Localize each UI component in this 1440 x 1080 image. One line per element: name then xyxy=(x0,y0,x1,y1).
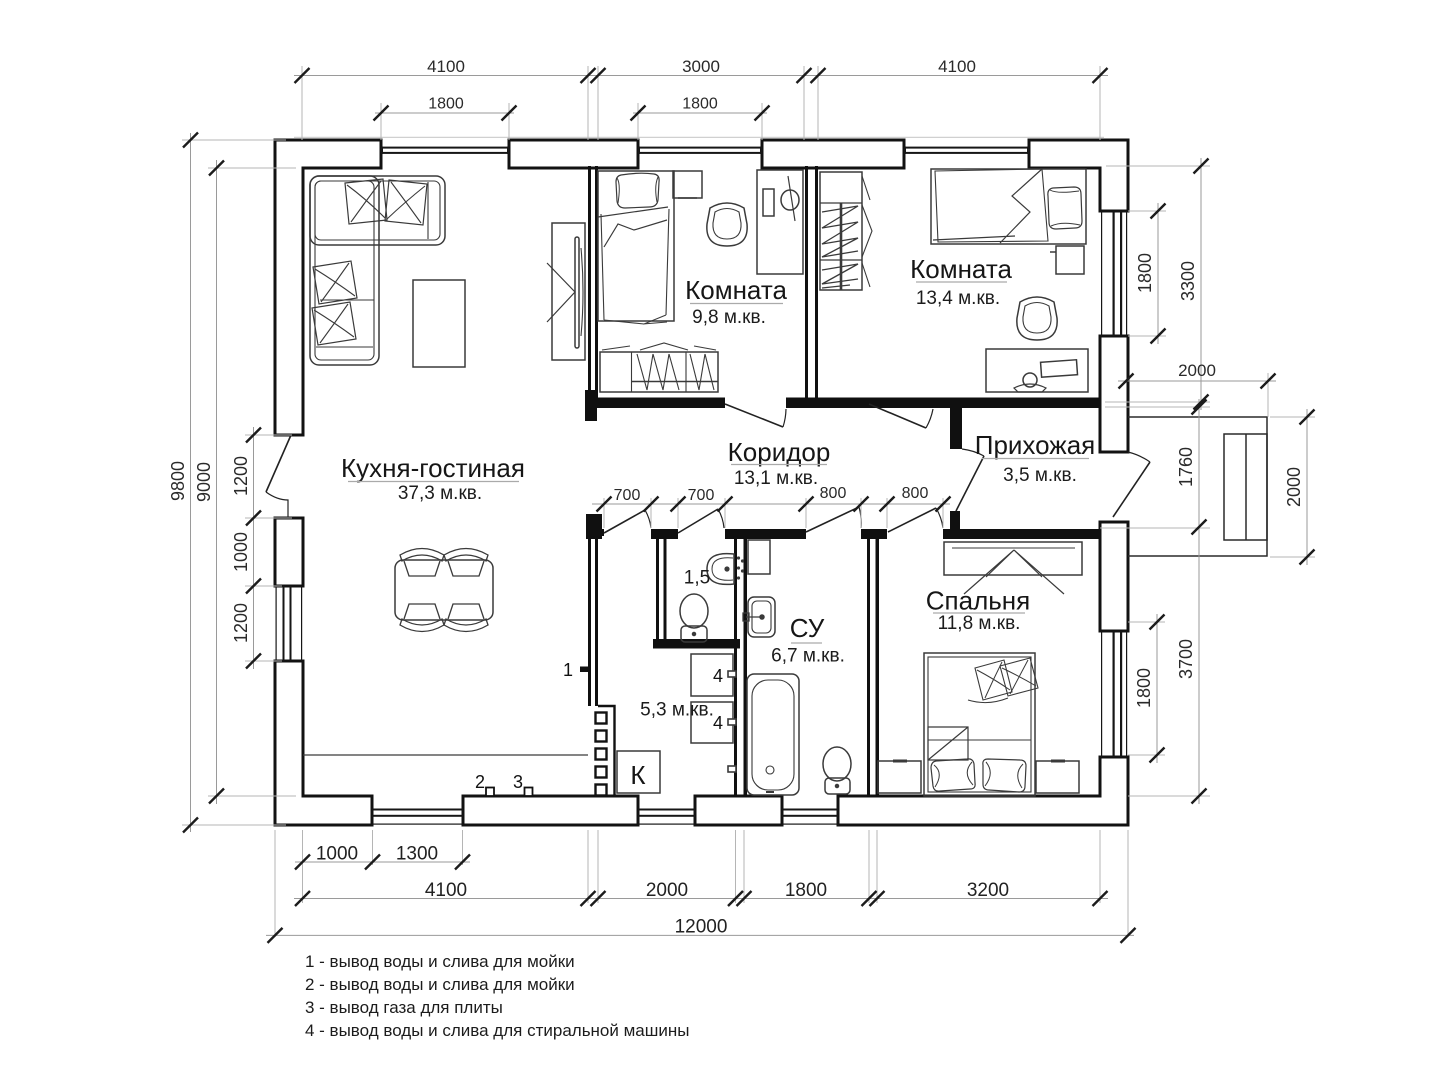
svg-text:3,5 м.кв.: 3,5 м.кв. xyxy=(1003,465,1077,486)
svg-text:3000: 3000 xyxy=(682,57,720,76)
svg-text:13,1 м.кв.: 13,1 м.кв. xyxy=(734,468,818,489)
svg-text:Спальня: Спальня xyxy=(926,586,1030,616)
svg-text:6,7 м.кв.: 6,7 м.кв. xyxy=(771,646,845,667)
svg-text:700: 700 xyxy=(614,487,641,504)
svg-text:Комната: Комната xyxy=(685,275,787,305)
svg-text:12000: 12000 xyxy=(675,917,728,938)
svg-text:4100: 4100 xyxy=(938,57,976,76)
svg-text:9,8 м.кв.: 9,8 м.кв. xyxy=(692,307,766,328)
svg-text:800: 800 xyxy=(820,485,847,502)
svg-text:2000: 2000 xyxy=(1284,467,1304,507)
svg-text:4: 4 xyxy=(713,666,723,686)
svg-text:1800: 1800 xyxy=(1134,668,1154,708)
svg-text:5,3 м.кв.: 5,3 м.кв. xyxy=(640,700,714,721)
svg-text:1300: 1300 xyxy=(396,844,438,865)
svg-text:1,5: 1,5 xyxy=(684,568,710,589)
svg-text:4100: 4100 xyxy=(425,880,467,901)
svg-text:3700: 3700 xyxy=(1176,639,1196,679)
svg-text:1000: 1000 xyxy=(316,844,358,865)
svg-text:9000: 9000 xyxy=(194,462,214,502)
svg-text:1800: 1800 xyxy=(682,96,718,113)
svg-text:4 - вывод воды и слива для сти: 4 - вывод воды и слива для стиральной ма… xyxy=(305,1021,690,1040)
svg-text:СУ: СУ xyxy=(790,613,825,643)
svg-text:1800: 1800 xyxy=(428,96,464,113)
svg-text:Кухня-гостиная: Кухня-гостиная xyxy=(341,453,525,483)
svg-text:13,4 м.кв.: 13,4 м.кв. xyxy=(916,288,1000,309)
svg-text:800: 800 xyxy=(902,485,929,502)
svg-text:3200: 3200 xyxy=(967,880,1009,901)
svg-text:3: 3 xyxy=(513,772,523,792)
svg-text:3300: 3300 xyxy=(1178,261,1198,301)
svg-text:700: 700 xyxy=(688,487,715,504)
svg-text:37,3 м.кв.: 37,3 м.кв. xyxy=(398,483,482,504)
svg-text:1800: 1800 xyxy=(785,880,827,901)
svg-text:1: 1 xyxy=(563,660,573,680)
svg-text:1200: 1200 xyxy=(231,456,251,496)
svg-text:1000: 1000 xyxy=(231,532,251,572)
svg-text:1200: 1200 xyxy=(231,603,251,643)
svg-text:11,8 м.кв.: 11,8 м.кв. xyxy=(938,613,1021,634)
svg-text:Комната: Комната xyxy=(910,254,1012,284)
svg-text:2000: 2000 xyxy=(1178,361,1216,380)
svg-text:Прихожая: Прихожая xyxy=(975,430,1095,460)
svg-text:2 - вывод воды и слива для мой: 2 - вывод воды и слива для мойки xyxy=(305,975,575,994)
svg-text:4: 4 xyxy=(713,713,723,733)
svg-text:4100: 4100 xyxy=(427,57,465,76)
svg-text:3 - вывод газа для плиты: 3 - вывод газа для плиты xyxy=(305,998,503,1017)
svg-text:1800: 1800 xyxy=(1135,253,1155,293)
svg-text:9800: 9800 xyxy=(168,461,188,501)
svg-text:2: 2 xyxy=(475,772,485,792)
svg-text:1 - вывод воды и слива для мой: 1 - вывод воды и слива для мойки xyxy=(305,952,575,971)
svg-text:Коридор: Коридор xyxy=(728,437,831,467)
svg-text:1760: 1760 xyxy=(1176,447,1196,487)
svg-text:К: К xyxy=(630,760,645,790)
svg-text:2000: 2000 xyxy=(646,880,688,901)
